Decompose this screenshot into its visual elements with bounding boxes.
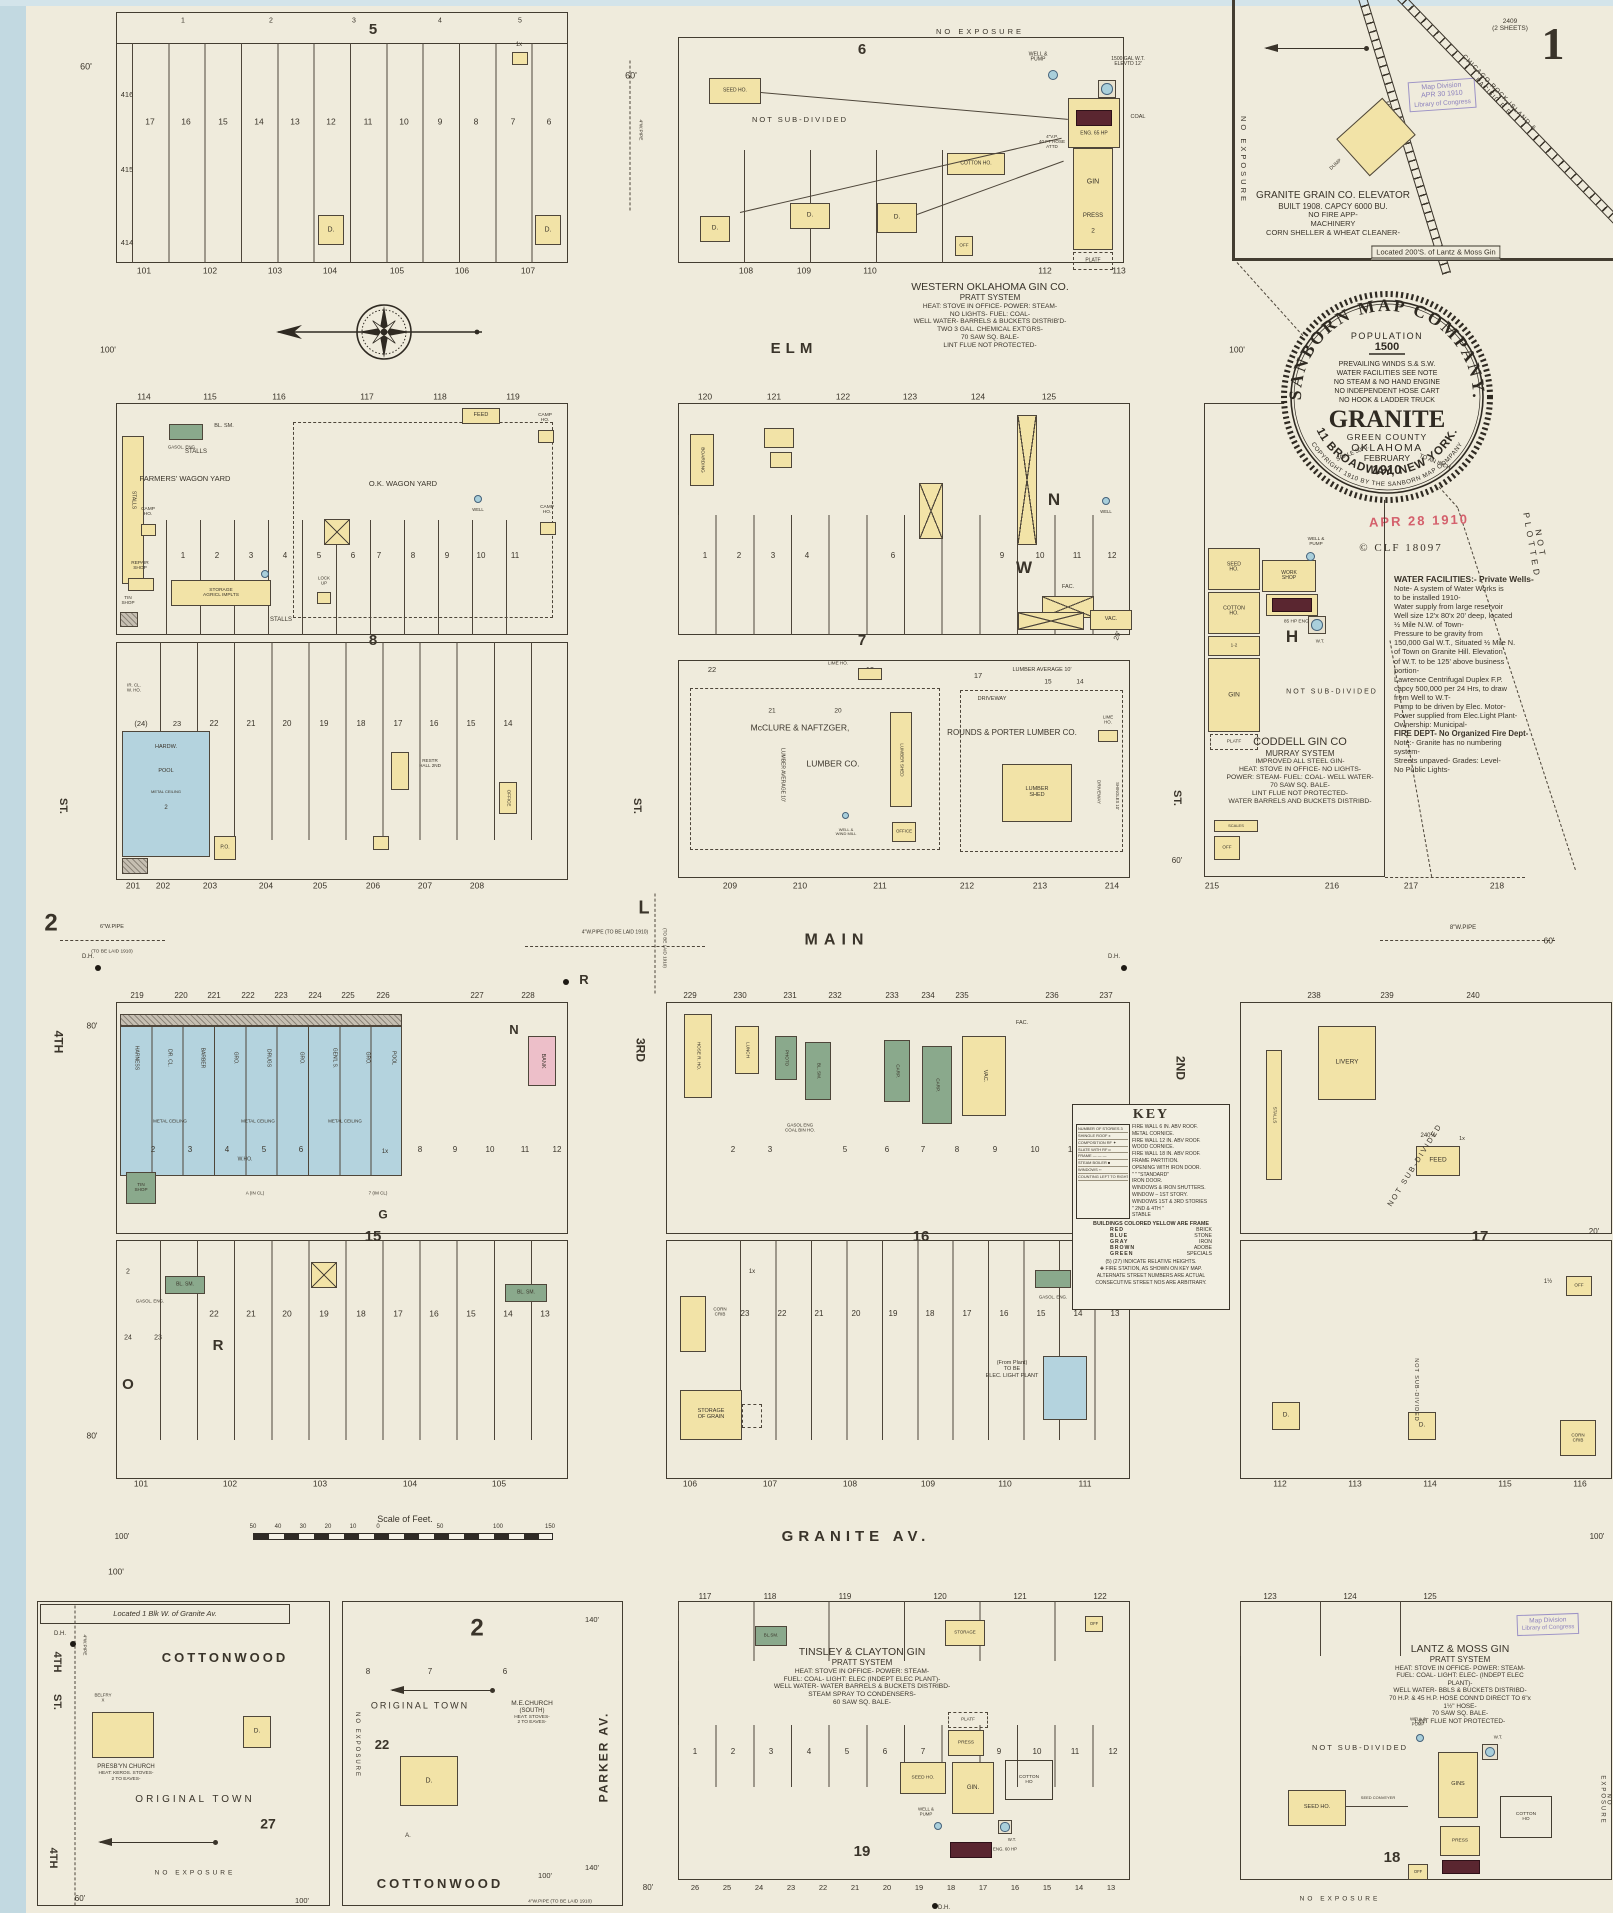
map-label: GRO. [232, 1052, 237, 1065]
map-label: 236 [1045, 992, 1058, 1000]
map-label: 7 [428, 1668, 432, 1676]
map-label: WELL & WIND MILL [836, 828, 857, 836]
building [1076, 110, 1112, 126]
dashed-line [1380, 940, 1555, 941]
line [1346, 1806, 1408, 1807]
western-oklahoma-gin-text: WESTERN OKLAHOMA GIN CO.PRATT SYSTEMHEAT… [911, 281, 1069, 349]
street-label: 4TH [52, 1031, 65, 1054]
map-label: RESTR HALL 2ND [419, 759, 441, 769]
text-line: TWO 3 GAL. CHEMICAL EXT'GRS- [911, 326, 1069, 334]
map-label: 221 [207, 992, 220, 1000]
map-label: TIN SHOP [121, 596, 134, 606]
map-label: 10 [477, 552, 486, 560]
seal-city: GRANITE [1329, 406, 1446, 433]
map-label: 15 [466, 1310, 475, 1319]
map-label: 1 [181, 552, 185, 560]
map-label: 22 [819, 1884, 827, 1892]
map-label: 3 [188, 1146, 192, 1154]
map-label: 60' [80, 62, 92, 71]
map-label: 20 [852, 1310, 861, 1318]
map-label: 122 [1093, 1593, 1106, 1601]
map-label: 4"W.PIPE [81, 1635, 86, 1656]
building [373, 836, 389, 850]
map-label: 415 [121, 166, 134, 174]
text-line: to be installed 1910- [1394, 593, 1613, 602]
map-label: COAL [1131, 115, 1146, 121]
map-label: BARBER [199, 1048, 204, 1069]
elevator-location-note: Located 200'S. of Lantz & Moss Gin [1371, 246, 1500, 261]
lot-grid [1240, 1601, 1480, 1656]
text-line: No Public Lights- [1394, 765, 1613, 774]
map-label: D. [894, 215, 901, 222]
block-number: 18 [1384, 1850, 1401, 1866]
street-name-cottonwood: COTTONWOOD [162, 1651, 289, 1665]
map-label: 120 [698, 393, 712, 402]
map-label: 210 [793, 882, 807, 891]
text-line: FIRE WALL 12 IN. ABV ROOF. [1132, 1138, 1226, 1145]
map-label: 16 [430, 720, 439, 728]
map-label: 231 [783, 992, 796, 1000]
dashed-line [75, 1606, 76, 1906]
granite-grain-elevator-text: GRANITE GRAIN CO. ELEVATORBUILT 1908. CA… [1256, 190, 1410, 238]
map-label: CARP. [935, 1078, 940, 1091]
map-label: 116 [1573, 1480, 1587, 1489]
map-label: 238 [1307, 992, 1320, 1000]
text-line: Pump to be driven by Elec. Motor- [1394, 702, 1613, 711]
block-number: 6 [858, 42, 866, 58]
map-label: 205 [313, 882, 327, 891]
building [770, 452, 792, 468]
map-label: 15 [1044, 680, 1051, 687]
scale-tick: 50 [250, 1524, 257, 1530]
map-label: 2 [731, 1748, 735, 1756]
map-label: 124 [1343, 1593, 1356, 1601]
map-label: 106 [455, 267, 469, 276]
map-label: 60' [1543, 937, 1554, 946]
map-label: 11 [1071, 1748, 1079, 1756]
map-label: 213 [1033, 882, 1047, 891]
map-label: 6 [547, 118, 552, 127]
map-label: 5 [262, 1146, 266, 1154]
map-label: 233 [885, 992, 898, 1000]
map-label: 1 [703, 552, 707, 560]
map-label: METAL CEILING [328, 1120, 362, 1125]
map-label: WELL & PUMP [1029, 53, 1048, 64]
map-label: 102 [203, 267, 217, 276]
map-label: D. [712, 226, 719, 233]
tank-circle [1000, 1822, 1009, 1831]
well-marker [842, 812, 849, 819]
street-label: 2ND [1174, 1056, 1187, 1080]
map-label: OFFICE [506, 790, 511, 807]
map-label: 207 [418, 882, 432, 891]
map-label: 202 [156, 882, 170, 891]
map-label: 6 [351, 552, 355, 560]
map-label: 19 [319, 1310, 328, 1319]
map-label: 225 [341, 992, 354, 1000]
map-label: HARNESS [133, 1046, 138, 1070]
map-label: IR. CL. W. HO. [127, 683, 141, 692]
text-line: METAL CORNICE. [1132, 1131, 1226, 1138]
map-label: 21 [247, 720, 256, 728]
map-label: GRO. [364, 1052, 369, 1065]
dashed-line [60, 940, 165, 941]
map-label: 121 [767, 393, 781, 402]
map-label: CAMP HO. [540, 505, 554, 515]
map-label: 4 [225, 1146, 229, 1154]
map-label: 80' [86, 1432, 97, 1441]
map-label: 224 [308, 992, 321, 1000]
map-label: 115 [1498, 1480, 1512, 1489]
map-label: 2 [44, 910, 57, 935]
map-label: 105 [390, 267, 404, 276]
map-label: 15 [1043, 1884, 1051, 1892]
map-label: 208 [470, 882, 484, 891]
map-label: SEED HO. [1304, 1805, 1330, 1811]
map-label: 12 [1108, 552, 1117, 560]
map-label: 101 [137, 267, 151, 276]
map-label: 15 [467, 720, 476, 728]
map-label: L [639, 899, 650, 918]
map-label: 18 [356, 1310, 365, 1319]
building [391, 752, 409, 790]
map-label: 232 [828, 992, 841, 1000]
seal-note: WATER FACILITIES SEE NOTE [1337, 370, 1438, 377]
map-label: SEED HO. [1227, 563, 1241, 574]
map-label: BL.SM. [764, 1634, 778, 1639]
map-label: 14 [504, 720, 513, 728]
map-label: 12 [1109, 1748, 1118, 1756]
map-label: SEED HO. [723, 88, 747, 93]
map-label: 4 [805, 552, 809, 560]
map-label: POOL [390, 1051, 395, 1065]
map-label: GASOL. ENG. [136, 1300, 164, 1305]
map-label: R [213, 1338, 224, 1354]
map-label: 10 [1031, 1146, 1040, 1154]
map-label: METAL CEILING [241, 1120, 275, 1125]
map-label: 100' [538, 1872, 552, 1880]
map-label: 8"W.PIPE [1450, 925, 1476, 931]
map-label: 14 [254, 118, 263, 127]
map-label: 21 [815, 1310, 824, 1318]
map-label: COTTON HO [1019, 1775, 1039, 1785]
grain-elevator-building [1336, 98, 1416, 177]
compass-rose [272, 296, 487, 368]
map-label: 204 [259, 882, 273, 891]
text-line: portion- [1394, 666, 1613, 675]
map-label: LIVERY [1335, 1060, 1358, 1067]
seal-population: 1500 [1375, 341, 1399, 353]
text-line: NUMBER OF STORIES 3 [1078, 1126, 1128, 1133]
map-label: SEED HO. [912, 1775, 935, 1780]
water-facilities-note: WATER FACILITIES:- Private Wells-Note- A… [1394, 574, 1613, 774]
map-label: 2 [737, 552, 741, 560]
text-line: WINDOWS 1ST & 3RD STORIES [1132, 1199, 1226, 1206]
street-label: ST. [56, 798, 68, 814]
map-label: BL. SM. [517, 1290, 535, 1295]
map-label: 1 [181, 17, 185, 24]
map-label: 228 [521, 992, 534, 1000]
map-label: 16 [1000, 1310, 1009, 1318]
map-label: DRIVEWAY [978, 697, 1007, 703]
sheet-number: 1 [1542, 20, 1565, 68]
tank-circle [1101, 83, 1113, 95]
map-label: 60' [75, 1895, 85, 1903]
map-label: 17 [145, 118, 154, 127]
map-label: A (IN CL) [246, 1192, 265, 1197]
map-label: D. [426, 1777, 433, 1784]
map-label: 117 [360, 393, 374, 402]
text-line: WESTERN OKLAHOMA GIN CO. [911, 281, 1069, 293]
map-label: 4 [438, 17, 442, 24]
block-number: 17 [1472, 1229, 1489, 1245]
map-label: VAC. [981, 1070, 987, 1082]
map-label: COTTON HO. [1223, 607, 1245, 618]
map-label: PHOTO [784, 1050, 789, 1066]
map-label: 125 [1042, 393, 1056, 402]
map-label: ORIGINAL TOWN [371, 1701, 469, 1710]
map-label: NOT SUB-DIVIDED [1286, 688, 1378, 695]
map-label: 140' [585, 1616, 599, 1624]
text-line: CONSECUTIVE STREET NOS ARE ARBITRARY. [1076, 1280, 1226, 1287]
map-label: WELL [472, 508, 483, 512]
text-line: NO LIGHTS- FUEL: COAL- [911, 311, 1069, 319]
text-line: (5) (27) INDICATE RELATIVE HEIGHTS. [1076, 1259, 1226, 1266]
map-label: 17 [963, 1310, 972, 1318]
arrow-part [213, 1840, 218, 1845]
map-label: POOL [158, 769, 173, 775]
building [540, 522, 556, 535]
map-label: PLATF [1085, 258, 1100, 263]
map-label: NO EXPOSURE [1300, 1897, 1381, 1904]
map-label: 237 [1099, 992, 1112, 1000]
map-label: 9 [438, 118, 443, 127]
map-label: 23 [741, 1310, 750, 1318]
map-label: 3 [769, 1748, 773, 1756]
map-label: 16 [1011, 1884, 1019, 1892]
block-number: H [1286, 628, 1298, 646]
tank-circle [1485, 1747, 1495, 1757]
map-label: W.T. [1008, 1838, 1016, 1842]
legend-key: KEY NUMBER OF STORIES 3SHINGLE ROOF xCOM… [1072, 1104, 1230, 1310]
map-label: 123 [903, 393, 917, 402]
scale-tick: 20 [325, 1524, 332, 1530]
text-line: ✚ FIRE STATION, AS SHOWN ON KEY MAP. [1076, 1266, 1226, 1273]
map-label: 100' [100, 346, 116, 355]
map-label: METAL CEILING [151, 790, 181, 794]
street-label: ST. [630, 798, 642, 814]
map-label: METAL CEILING [153, 1120, 187, 1125]
map-label: 100' [1229, 346, 1245, 355]
map-label: 13 [1111, 1310, 1120, 1318]
text-line: SHINGLE ROOF x [1078, 1133, 1128, 1140]
map-label: 119 [506, 393, 520, 402]
scale-tick: 40 [275, 1524, 282, 1530]
block-number: 5 [369, 22, 377, 38]
map-label: FAC. [1062, 585, 1074, 591]
map-label: G [378, 1209, 387, 1222]
rounds-porter-label: ROUNDS & PORTER LUMBER CO. [947, 729, 1077, 737]
map-label: 11 [1073, 552, 1081, 560]
street-name-granite-av: GRANITE AV. [782, 1529, 931, 1545]
text-line: WELL WATER- BARRELS & BUCKETS DISTRIB'D- [911, 318, 1069, 326]
map-label: D. [328, 226, 335, 233]
map-label: DUMP [1329, 158, 1343, 171]
building [324, 519, 350, 545]
map-label: 13 [1107, 1884, 1115, 1892]
map-label: PLATF [1227, 739, 1242, 744]
map-label: 123 [1263, 1593, 1276, 1601]
map-label: 211 [873, 882, 887, 891]
map-label: 7 (IM CL) [369, 1192, 388, 1197]
map-label: 220 [174, 992, 187, 1000]
dashed-line [655, 894, 656, 994]
building [1098, 730, 1118, 742]
arrow-part [98, 1838, 112, 1846]
elec-light-plant-building [1043, 1356, 1087, 1420]
map-label: 19 [889, 1310, 898, 1318]
map-label: 4"W.PIPE [637, 120, 642, 141]
map-label: 100' [1590, 1533, 1605, 1541]
presbyn-church-building [92, 1712, 154, 1758]
building [317, 592, 331, 604]
map-label: (TO BE LAID 1910) [662, 928, 667, 968]
map-label: FEED [1429, 1158, 1446, 1165]
map-label: 16 [181, 118, 190, 127]
map-label: 9 [997, 1748, 1001, 1756]
map-label: 8 [955, 1146, 959, 1154]
map-label: 10 [1033, 1748, 1042, 1756]
text-line: STABLE [1132, 1212, 1226, 1219]
map-label: 6 [885, 1146, 889, 1154]
map-label: LUMBER SHED [1026, 787, 1049, 799]
map-label: 110 [863, 267, 877, 276]
inset-title: Located 1 Blk W. of Granite Av. [113, 1610, 216, 1618]
map-label: 8 [366, 1668, 370, 1676]
street-label: ST. [1170, 790, 1182, 806]
map-label: 22 [708, 666, 716, 674]
map-label: 11 [364, 118, 373, 127]
map-label: 15 [1037, 1310, 1046, 1318]
map-label: 2 [1091, 229, 1095, 236]
map-label: 108 [843, 1480, 857, 1489]
map-label: 11 [511, 552, 519, 560]
map-label: 104 [403, 1480, 417, 1489]
map-label: 239 [1380, 992, 1393, 1000]
map-label: 6 [503, 1668, 507, 1676]
map-label: REPAIR SHOP [131, 561, 149, 571]
street-name-main: MAIN [805, 933, 870, 950]
well-marker [1048, 70, 1058, 80]
sanborn-seal: SANBORN MAP COMPANY. 11 BROADWAY, NEW YO… [1277, 287, 1497, 507]
map-label: 105 [492, 1480, 506, 1489]
scale-tick: 0 [376, 1524, 379, 1530]
map-label: D. [545, 226, 552, 233]
me-church-inset-outline [342, 1601, 623, 1906]
scale-bar: Scale of Feet. 50 40 30 20 10 0 50 100 1… [250, 1514, 560, 1540]
map-label: 5 [518, 17, 522, 24]
scale-tick: 10 [350, 1524, 357, 1530]
map-label: BL. SM. [816, 1063, 821, 1079]
map-label: 113 [1348, 1480, 1362, 1489]
map-label: GIN. [967, 1785, 979, 1791]
scale-bar-graphic [253, 1533, 553, 1540]
map-label: 8 [418, 1146, 422, 1154]
map-label: 2 [164, 805, 167, 811]
map-label: D.H. [82, 954, 94, 960]
map-label: TIN SHOP [134, 1183, 147, 1193]
building [919, 483, 943, 539]
text-line: Ownership: Municipal- [1394, 720, 1613, 729]
map-label: 6 [883, 1748, 887, 1756]
building [1035, 1270, 1071, 1288]
text-line: STEAM BOILER ■ [1078, 1160, 1128, 1167]
map-label: 103 [313, 1480, 327, 1489]
map-label: A. [405, 1833, 411, 1839]
map-label: 7 [377, 552, 381, 560]
map-label: PRESS [958, 1740, 974, 1745]
map-label: 106 [683, 1480, 697, 1489]
seal-note: NO INDEPENDENT HOSE CART [1334, 388, 1440, 395]
map-label: STALLS [130, 491, 135, 509]
map-label: DR. CL. [166, 1049, 171, 1067]
map-label: WELL & PUMP [1410, 1717, 1426, 1726]
map-label: 226 [376, 992, 389, 1000]
map-label: OFF [1222, 846, 1231, 851]
text-line: capcy 500,000 per 24 Hrs, to draw [1394, 684, 1613, 693]
text-line: FIRE WALL 18 IN. ABV ROOF. [1132, 1151, 1226, 1158]
map-label: N [1048, 491, 1060, 509]
text-line: PRATT SYSTEM [911, 293, 1069, 302]
scale-title: Scale of Feet. [250, 1514, 560, 1524]
building [950, 1842, 992, 1858]
map-label: 16 [429, 1310, 438, 1319]
text-line: LINT FLUE NOT PROTECTED- [911, 342, 1069, 350]
north-arrow [392, 1690, 492, 1691]
text-line: SLATE WITH RF o [1078, 1147, 1128, 1154]
map-label: 9 [1000, 552, 1004, 560]
map-label: (24) [134, 720, 147, 728]
map-label: 108 [739, 267, 753, 276]
map-label: BELFRY X [94, 1693, 111, 1702]
arrow-part [390, 1686, 404, 1694]
map-label: 218 [1490, 882, 1504, 891]
map-label: W.T. [1316, 640, 1325, 645]
map-label: 416 [121, 91, 134, 99]
map-label: 230 [733, 992, 746, 1000]
hydrant-marker [70, 1641, 76, 1647]
building [169, 424, 203, 440]
map-label: 113 [1112, 267, 1126, 276]
map-label: D. [1283, 1413, 1290, 1420]
north-arrow [100, 1842, 215, 1843]
map-label: 24 [755, 1884, 763, 1892]
map-label: W [1016, 559, 1032, 577]
text-line: COUNTING LEFT TO RIGHT [1078, 1174, 1128, 1181]
map-label: 120 [933, 1593, 946, 1601]
map-label: 240 [1466, 992, 1479, 1000]
map-label: 109 [921, 1480, 935, 1489]
map-label: GINS [1451, 1782, 1464, 1788]
map-label: W.T. [1494, 1736, 1503, 1741]
map-label: CARP. [895, 1064, 900, 1077]
map-label: 5 [843, 1146, 847, 1154]
map-label: 2 [151, 1146, 155, 1154]
map-label: CORN CRIB [713, 1307, 726, 1316]
map-label: 215 [1205, 882, 1219, 891]
text-line: Pressure to be gravity from [1394, 629, 1613, 638]
map-label: W.HO. [238, 1157, 253, 1162]
